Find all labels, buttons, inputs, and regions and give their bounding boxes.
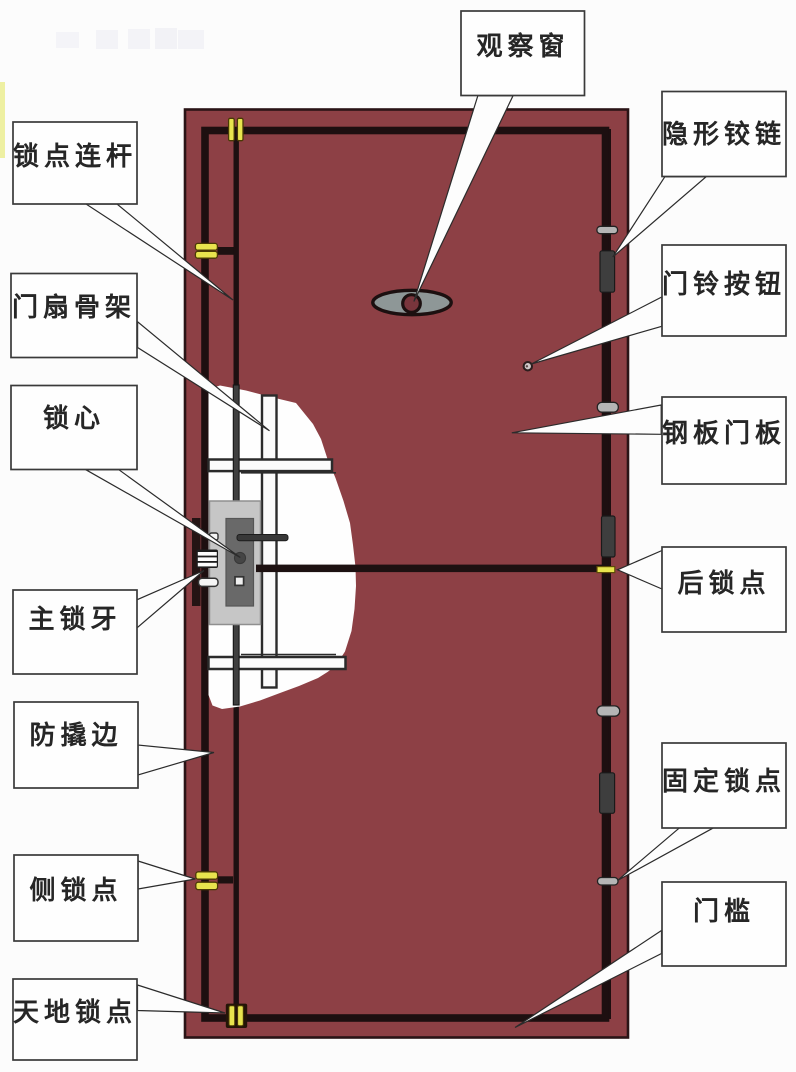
svg-text:锁点连杆: 锁点连杆 [13,141,137,171]
svg-text:后锁点: 后锁点 [677,568,770,598]
svg-text:天地锁点: 天地锁点 [13,997,137,1027]
svg-text:主锁牙: 主锁牙 [28,604,121,634]
svg-text:钢板门板: 钢板门板 [662,418,786,448]
svg-text:门铃按钮: 门铃按钮 [662,269,786,299]
svg-text:锁心: 锁心 [43,403,105,433]
svg-text:固定锁点: 固定锁点 [662,766,786,796]
svg-text:隐形铰链: 隐形铰链 [662,119,786,149]
svg-text:门槛: 门槛 [693,896,755,926]
svg-text:防撬边: 防撬边 [29,720,122,750]
svg-text:门扇骨架: 门扇骨架 [12,292,136,322]
svg-text:观察窗: 观察窗 [476,31,569,61]
svg-text:侧锁点: 侧锁点 [29,875,122,905]
